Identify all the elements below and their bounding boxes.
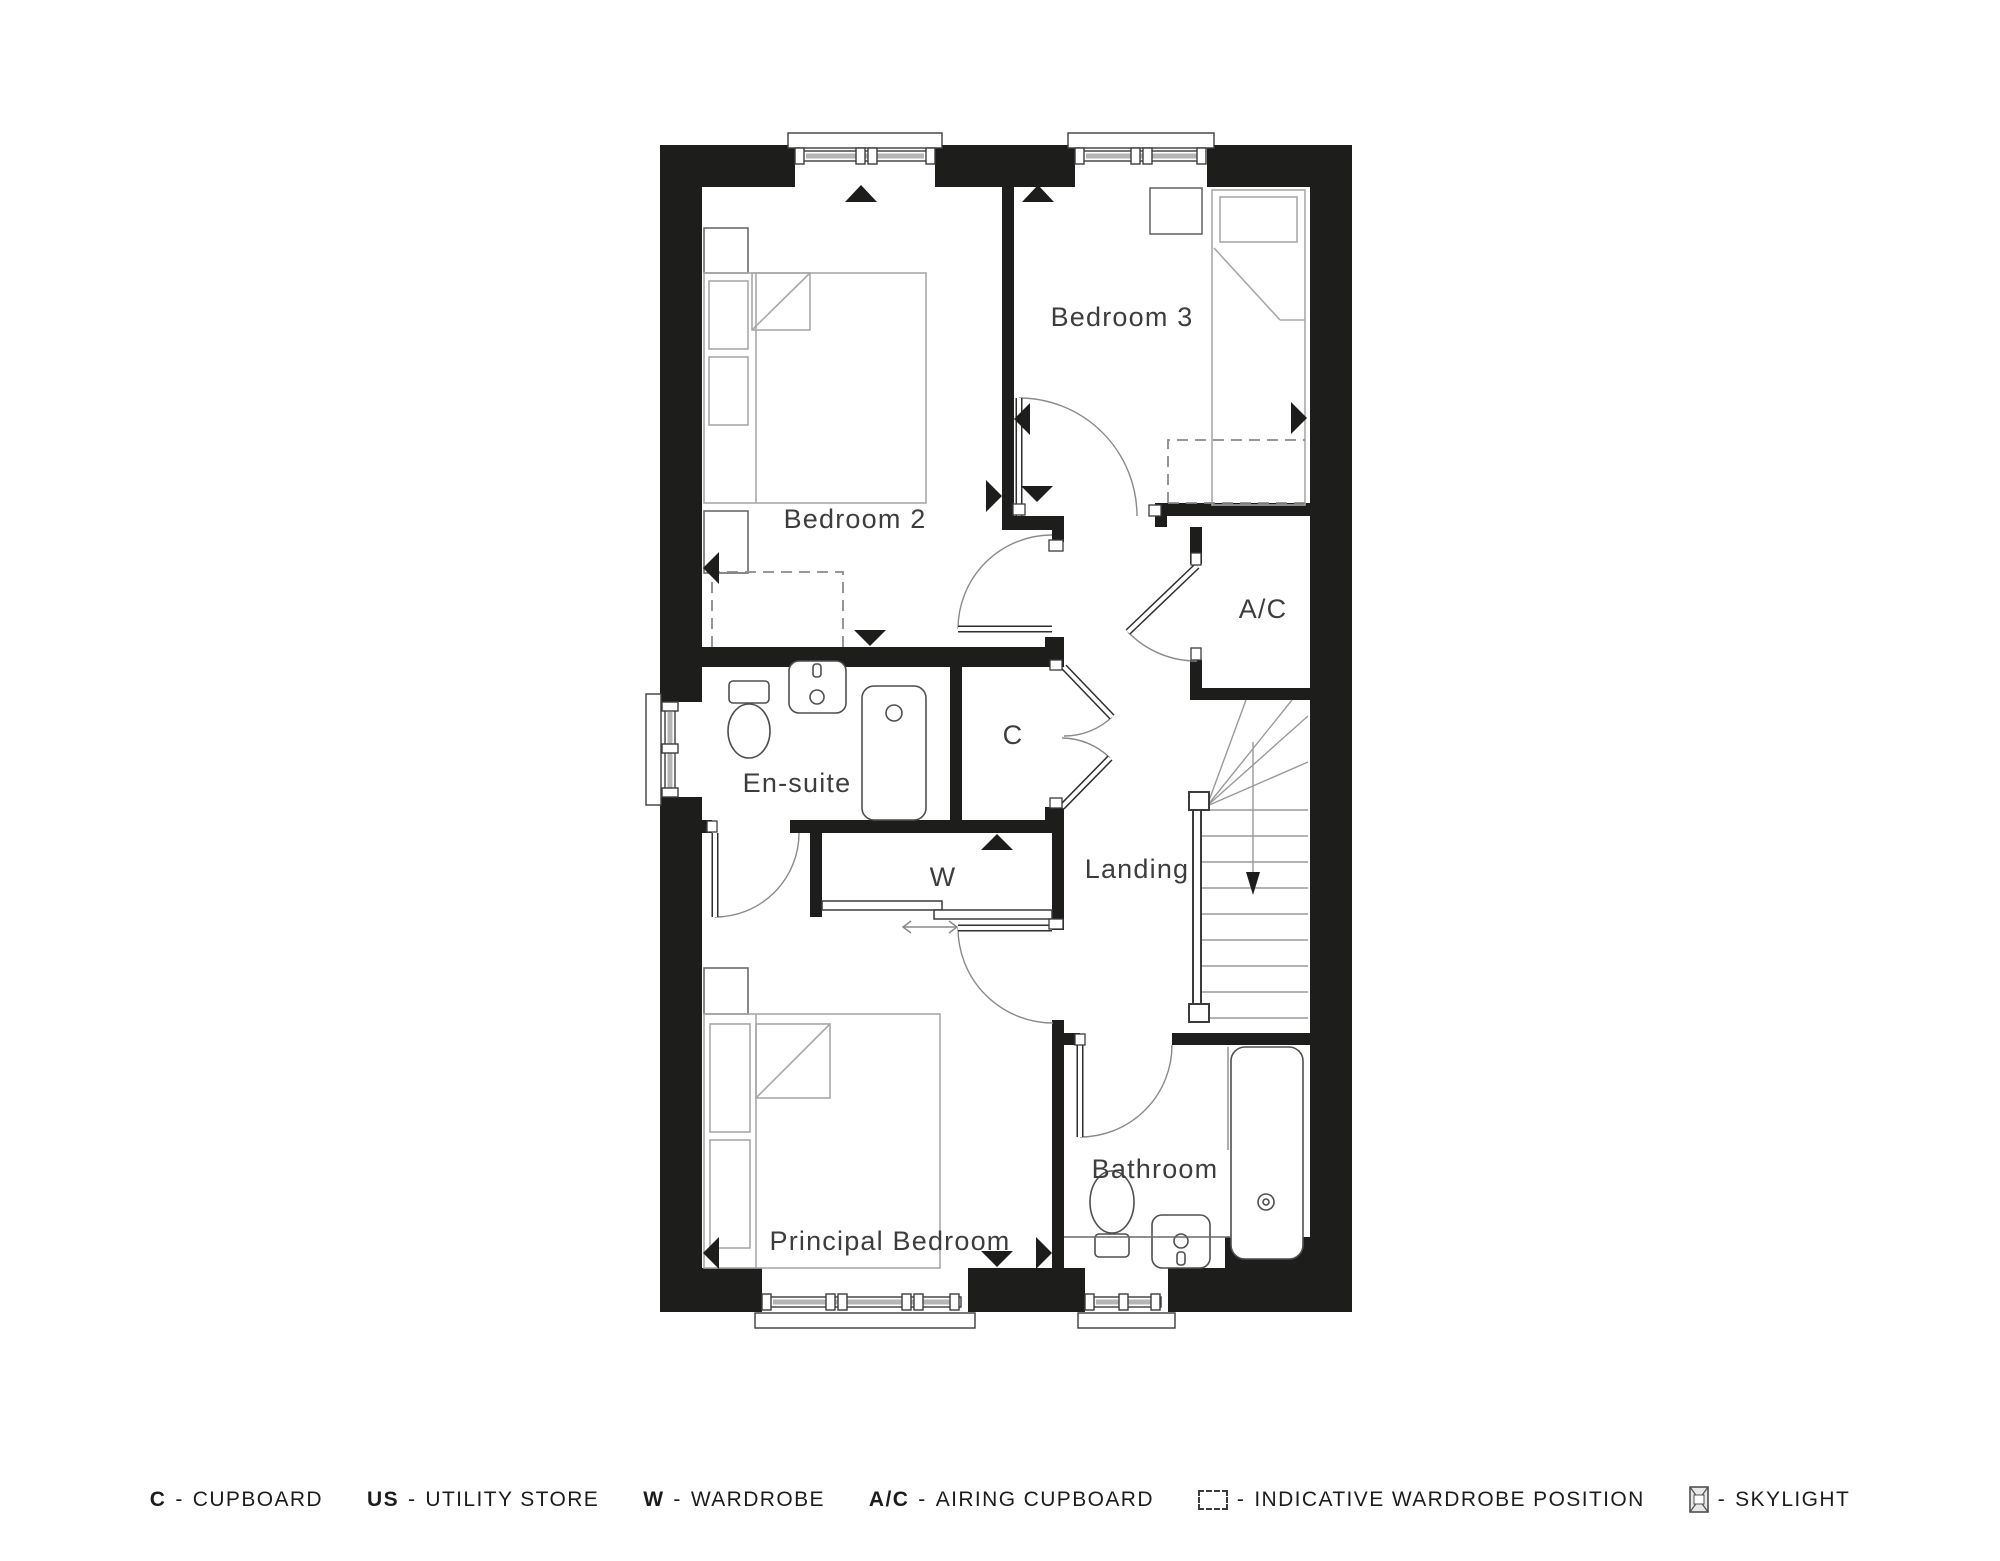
room-label-airing-cupboard: A/C: [1213, 594, 1313, 625]
legend-dash: -: [1718, 1488, 1726, 1512]
legend-item-utility-store: US - UTILITY STORE: [367, 1488, 599, 1512]
legend-abbr: C: [150, 1488, 167, 1512]
legend-dash: -: [918, 1488, 926, 1512]
floor-plan-drawing: [0, 0, 2000, 1561]
legend: C - CUPBOARD US - UTILITY STORE W - WARD…: [0, 1486, 2000, 1513]
legend-label: WARDROBE: [691, 1488, 825, 1512]
legend-item-indicative-wardrobe: - INDICATIVE WARDROBE POSITION: [1198, 1488, 1645, 1512]
legend-item-skylight: - SKYLIGHT: [1689, 1486, 1850, 1513]
room-label-bedroom-3: Bedroom 3: [1037, 302, 1207, 333]
legend-dash: -: [673, 1488, 681, 1512]
room-label-bedroom-2: Bedroom 2: [770, 504, 940, 535]
legend-dash: -: [175, 1488, 183, 1512]
legend-item-cupboard: C - CUPBOARD: [150, 1488, 323, 1512]
room-label-ensuite: En-suite: [712, 768, 882, 799]
floor-plan-page: Bedroom 2 Bedroom 3 En-suite C W Landing…: [0, 0, 2000, 1561]
legend-label: INDICATIVE WARDROBE POSITION: [1254, 1488, 1644, 1512]
legend-abbr: W: [643, 1488, 664, 1512]
room-label-principal-bedroom: Principal Bedroom: [765, 1226, 1015, 1257]
legend-dash: -: [408, 1488, 416, 1512]
legend-label: UTILITY STORE: [425, 1488, 599, 1512]
room-label-landing: Landing: [1052, 854, 1222, 885]
room-label-bathroom: Bathroom: [1070, 1154, 1240, 1185]
room-label-cupboard: C: [988, 720, 1038, 751]
legend-abbr: US: [367, 1488, 399, 1512]
legend-item-wardrobe: W - WARDROBE: [643, 1488, 825, 1512]
legend-item-airing-cupboard: A/C - AIRING CUPBOARD: [869, 1488, 1154, 1512]
legend-dash: -: [1237, 1488, 1245, 1512]
legend-label: AIRING CUPBOARD: [936, 1488, 1154, 1512]
legend-label: CUPBOARD: [193, 1488, 323, 1512]
room-label-wardrobe: W: [918, 862, 968, 893]
dashed-box-icon: [1198, 1490, 1228, 1510]
skylight-icon: [1689, 1486, 1709, 1513]
legend-label: SKYLIGHT: [1735, 1488, 1850, 1512]
legend-abbr: A/C: [869, 1488, 909, 1512]
